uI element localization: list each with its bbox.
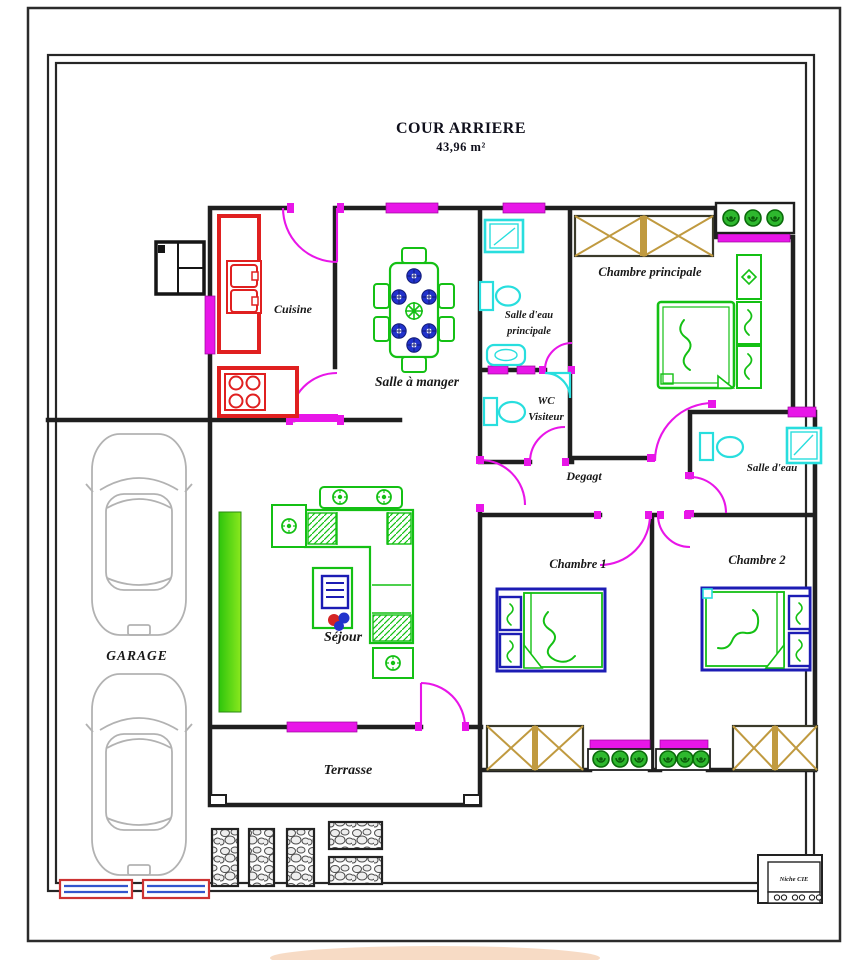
door-wc [530, 427, 565, 462]
shower-icon [787, 428, 821, 463]
bed-icon [497, 589, 605, 671]
door-kitchen-top [283, 208, 337, 262]
niche-label: Niche CIE [779, 876, 809, 883]
toilet-icon [700, 433, 743, 460]
room-label-chambre-1: Chambre 1 [549, 557, 606, 571]
room-label-degagement: Degagt [565, 469, 602, 483]
dining-set-icon [374, 248, 454, 372]
plant-icon [723, 210, 739, 226]
coffee-table-icon [313, 568, 352, 631]
bathroom-right-fixtures [700, 428, 821, 463]
room-label-chambre-2: Chambre 2 [728, 553, 785, 567]
room-label-sejour: Séjour [324, 630, 363, 645]
door-bathroom-right [690, 477, 726, 513]
car-icon [86, 434, 192, 635]
car-icon [86, 674, 192, 875]
door-bedroom2 [658, 515, 690, 547]
room-label-salle-eau-principale-2: principale [506, 326, 551, 337]
planter-bays-bottom [588, 749, 710, 770]
tv-icon [322, 576, 348, 608]
plant-icon [377, 490, 391, 504]
plant-icon [660, 751, 676, 767]
room-label-salle-eau-principale-1: Salle d'eau [505, 310, 553, 321]
terrace-wall-notch [210, 795, 226, 805]
bath-main-fixtures [480, 220, 525, 365]
page-border [28, 8, 840, 941]
garage-contents [60, 434, 209, 898]
shower-icon [485, 220, 523, 252]
nightstand-icon [737, 302, 761, 388]
washbasin-icon [487, 345, 525, 365]
bed-icon [702, 588, 810, 670]
bed-icon [658, 302, 734, 388]
plant-icon [612, 751, 628, 767]
toilet-icon [480, 282, 520, 310]
living-room-furniture [219, 487, 413, 712]
toilet-icon [484, 398, 525, 425]
window-bath-main [503, 203, 545, 213]
niche-box: Niche CIE [758, 855, 822, 903]
bedroom2-furniture [702, 588, 817, 770]
window-vent-1 [488, 366, 508, 374]
bedroom1-furniture [487, 589, 605, 770]
door-bedroom1 [600, 515, 650, 565]
room-label-salle-a-manger: Salle à manger [375, 374, 460, 389]
console-table-icon [320, 487, 402, 508]
room-label-chambre-principale: Chambre principale [598, 265, 702, 279]
door-hall [480, 460, 525, 505]
window-bathroom-right [788, 407, 816, 417]
window-bedroom1 [590, 740, 650, 749]
stone-pavers [212, 822, 382, 886]
door-terrace [421, 683, 465, 727]
window-terrace [287, 722, 357, 732]
room-label-wc-1: WC [537, 395, 555, 407]
room-label-garage: GARAGE [106, 648, 168, 663]
planter-strip [219, 512, 241, 712]
window-vent-2 [517, 366, 535, 374]
dresser-icon [737, 255, 761, 299]
floor-plan-canvas: COUR ARRIERE 43,96 m² [0, 0, 866, 960]
end-table-icon [373, 648, 413, 678]
scan-artifact [270, 946, 600, 960]
plant-icon [745, 210, 761, 226]
floor-plan-page: COUR ARRIERE 43,96 m² [0, 0, 866, 960]
side-table-icon [272, 505, 306, 547]
room-label-cuisine: Cuisine [274, 302, 313, 316]
room-label-terrasse: Terrasse [324, 763, 373, 778]
plant-icon [693, 751, 709, 767]
stove-icon [219, 368, 297, 416]
wardrobe-icon [575, 216, 713, 256]
kitchen-fixtures [219, 216, 297, 416]
plant-icon [677, 751, 693, 767]
plant-icon [282, 519, 296, 533]
wardrobe-icon [733, 726, 817, 770]
room-label-salle-eau: Salle d'eau [747, 462, 797, 474]
plant-icon [386, 656, 400, 670]
planter-box-top [716, 203, 794, 233]
window-kitchen [205, 296, 215, 354]
plant-icon [631, 751, 647, 767]
room-label-wc-2: Visiteur [528, 411, 564, 423]
utility-box-icon [156, 242, 204, 294]
plan-title: COUR ARRIERE [396, 120, 526, 137]
sink-icon [227, 261, 261, 313]
window-dining [386, 203, 438, 213]
plant-icon [333, 490, 347, 504]
window-bedroom2 [660, 740, 708, 749]
plant-icon [767, 210, 783, 226]
plant-icon [593, 751, 609, 767]
wardrobe-icon [487, 726, 583, 770]
plan-area-value: 43,96 m² [436, 140, 485, 154]
terrace-wall-notch [464, 795, 480, 805]
